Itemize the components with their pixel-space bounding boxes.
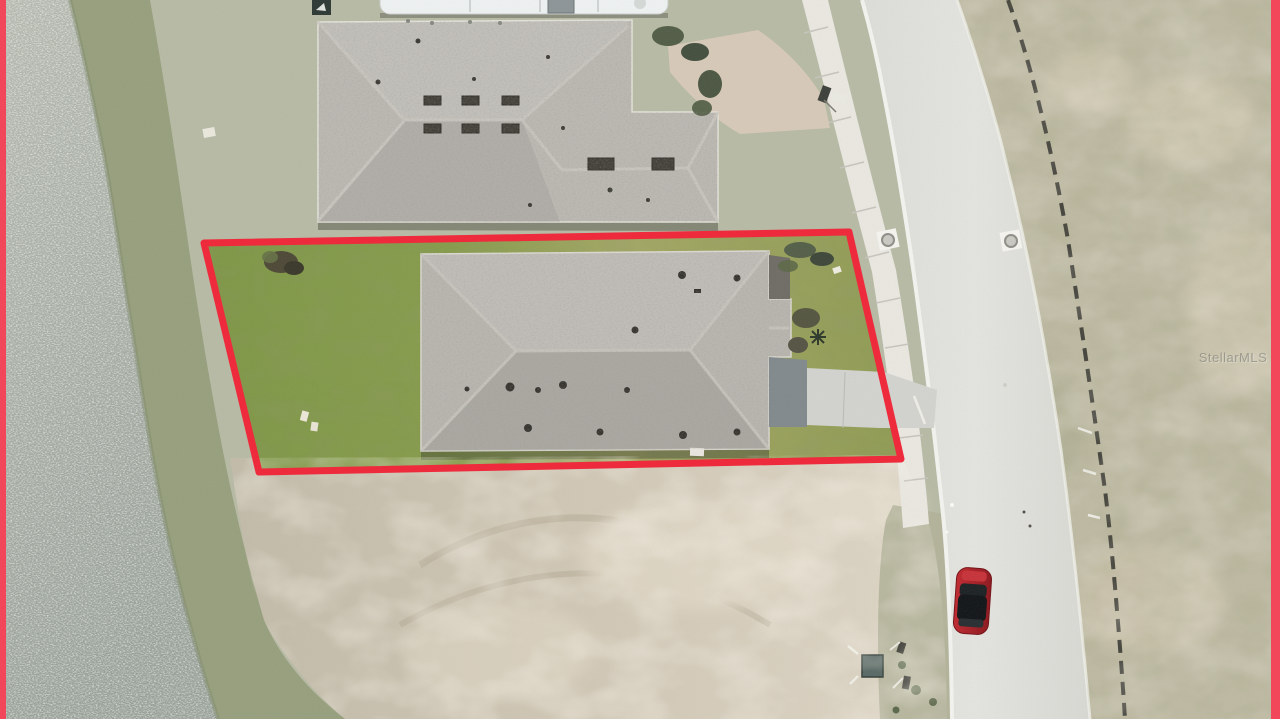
watermark: StellarMLS StellarMLS — [1199, 350, 1269, 366]
watermark-text: StellarMLS — [1199, 350, 1268, 365]
right-edge-strip — [1271, 0, 1280, 719]
left-edge-strip — [0, 0, 6, 719]
texture-overlays — [0, 0, 1280, 719]
aerial-photo: StellarMLS StellarMLS — [0, 0, 1280, 719]
